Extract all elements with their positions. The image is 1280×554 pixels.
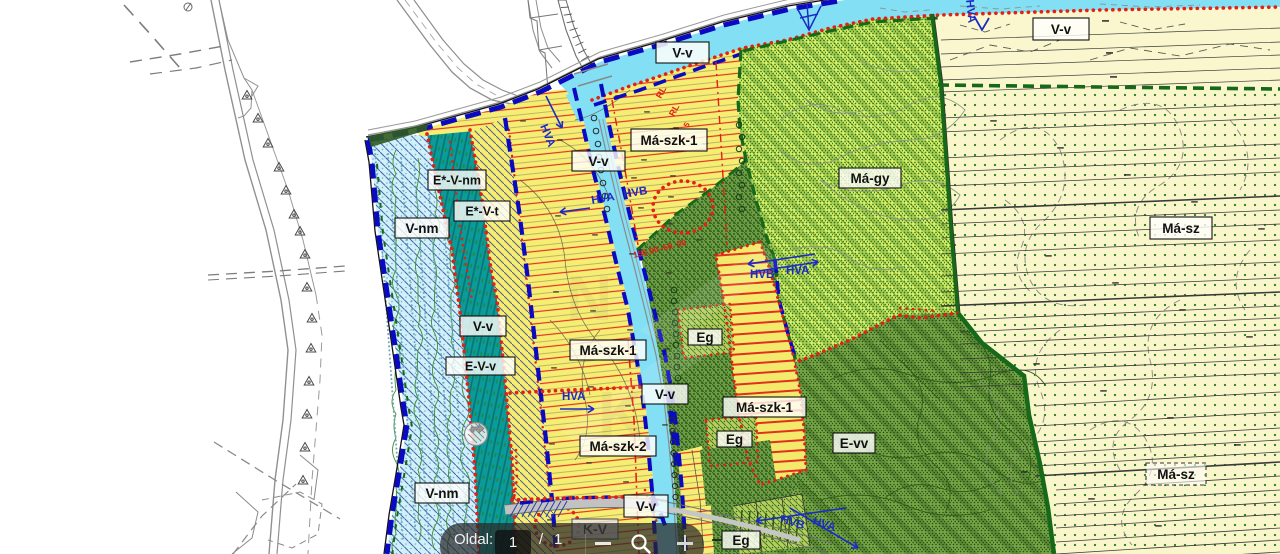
svg-text:N: N — [566, 262, 612, 334]
svg-text:E*-V-t: E*-V-t — [465, 205, 499, 219]
svg-text:Eg: Eg — [732, 533, 749, 548]
svg-text:Má-szk-2: Má-szk-2 — [589, 439, 646, 454]
svg-text:E*-V-nm: E*-V-nm — [433, 174, 481, 188]
svg-text:V-v: V-v — [1051, 22, 1072, 37]
svg-text:Má-gy: Má-gy — [850, 171, 889, 186]
svg-text:V-nm: V-nm — [405, 221, 438, 236]
svg-text:V-v: V-v — [655, 387, 676, 402]
svg-text:E-vv: E-vv — [840, 436, 869, 451]
svg-text:Má-szk-1: Má-szk-1 — [579, 343, 637, 358]
svg-text:E-V-v: E-V-v — [465, 360, 496, 374]
svg-text:HVB: HVB — [750, 269, 774, 281]
svg-text:V-v: V-v — [473, 319, 494, 334]
svg-text:HVA: HVA — [562, 391, 585, 403]
svg-text:Má-sz: Má-sz — [1162, 221, 1200, 236]
svg-text:Eg: Eg — [726, 432, 743, 447]
svg-text:V-nm: V-nm — [425, 486, 458, 501]
svg-text:Eg: Eg — [696, 330, 713, 345]
svg-text:HVA: HVA — [963, 0, 977, 24]
svg-text:V-v: V-v — [636, 499, 657, 514]
svg-text:Má-szk-1: Má-szk-1 — [736, 400, 794, 415]
svg-text:Má-szk-1: Má-szk-1 — [640, 133, 698, 148]
svg-text:V-v: V-v — [588, 154, 609, 169]
svg-text:HVA: HVA — [786, 265, 809, 277]
svg-text:V-v: V-v — [672, 45, 693, 60]
svg-text:Má-sz: Má-sz — [1157, 467, 1195, 482]
